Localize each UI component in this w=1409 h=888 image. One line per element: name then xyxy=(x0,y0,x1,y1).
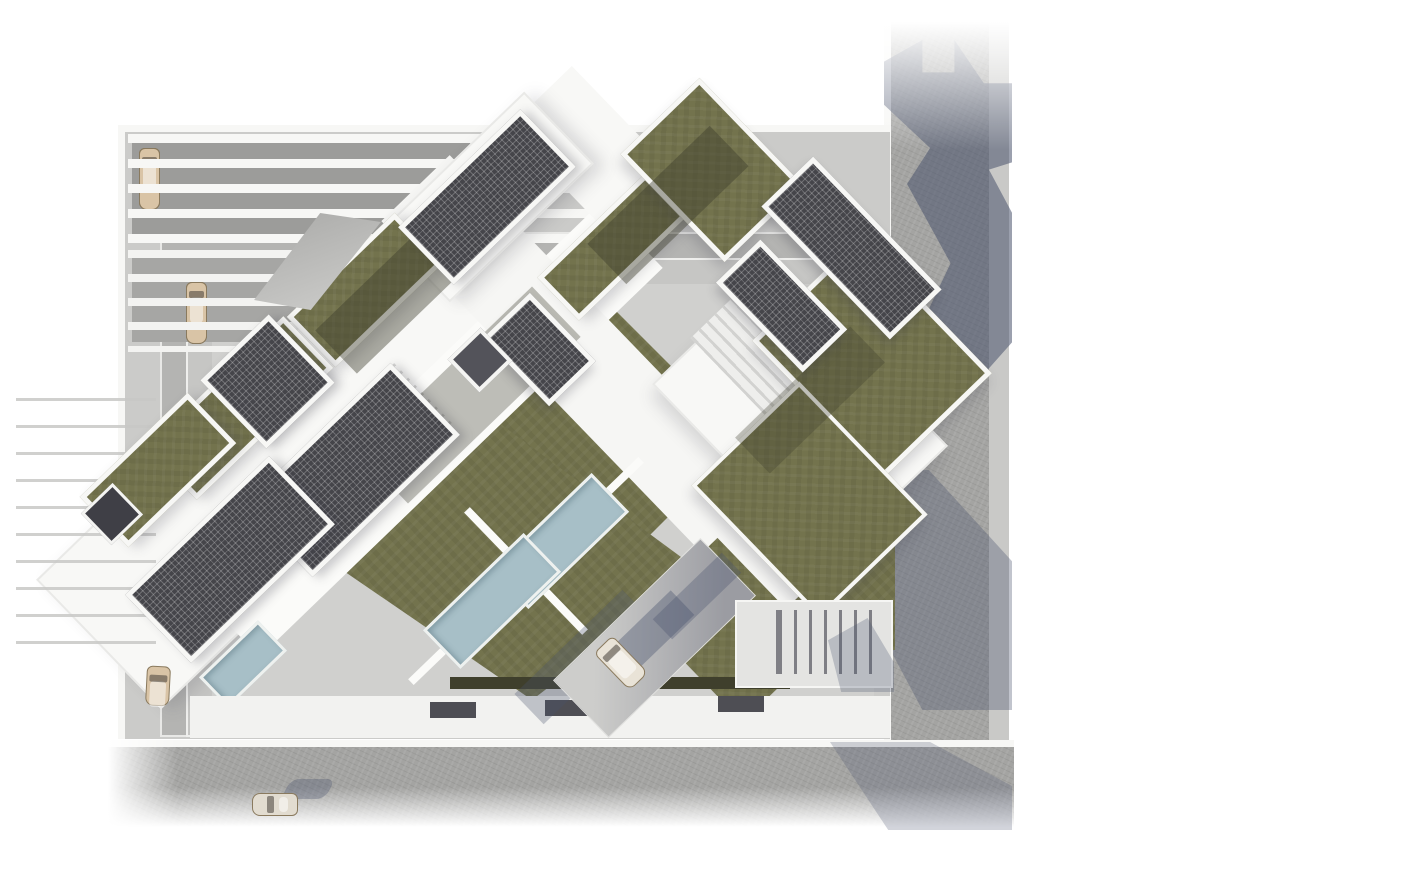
car-on-street xyxy=(252,793,298,816)
aerial-site-render xyxy=(0,0,1409,888)
road-right-top-fade xyxy=(884,0,1014,150)
walkway-slot-3 xyxy=(718,696,764,712)
walkway-slot-1 xyxy=(430,702,476,718)
car-west-edge xyxy=(145,665,171,706)
